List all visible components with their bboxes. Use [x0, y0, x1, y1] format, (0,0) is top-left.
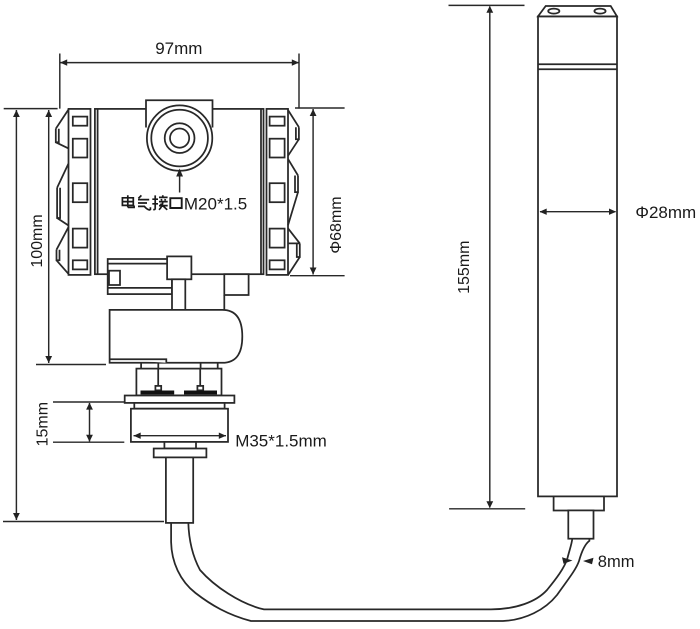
svg-text:M35*1.5mm: M35*1.5mm	[235, 431, 327, 450]
svg-text:Φ68mm: Φ68mm	[328, 196, 345, 253]
svg-text:8mm: 8mm	[598, 553, 635, 571]
svg-text:97mm: 97mm	[155, 39, 202, 58]
svg-text:155mm: 155mm	[456, 241, 473, 294]
svg-text:15mm: 15mm	[34, 402, 51, 446]
svg-text:100mm: 100mm	[29, 214, 46, 267]
svg-text:M20*1.5: M20*1.5	[184, 195, 247, 214]
svg-text:Φ28mm: Φ28mm	[635, 203, 696, 222]
